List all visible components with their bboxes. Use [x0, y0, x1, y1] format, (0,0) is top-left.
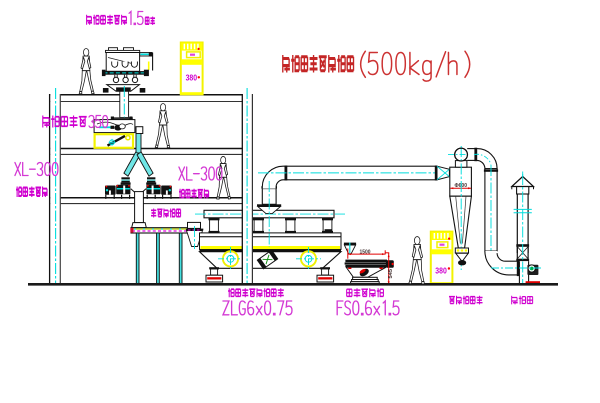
svg-text:380: 380 [186, 73, 198, 82]
svg-text:380: 380 [435, 267, 447, 276]
svg-text:1500: 1500 [360, 249, 371, 255]
svg-text:545: 545 [388, 269, 394, 279]
